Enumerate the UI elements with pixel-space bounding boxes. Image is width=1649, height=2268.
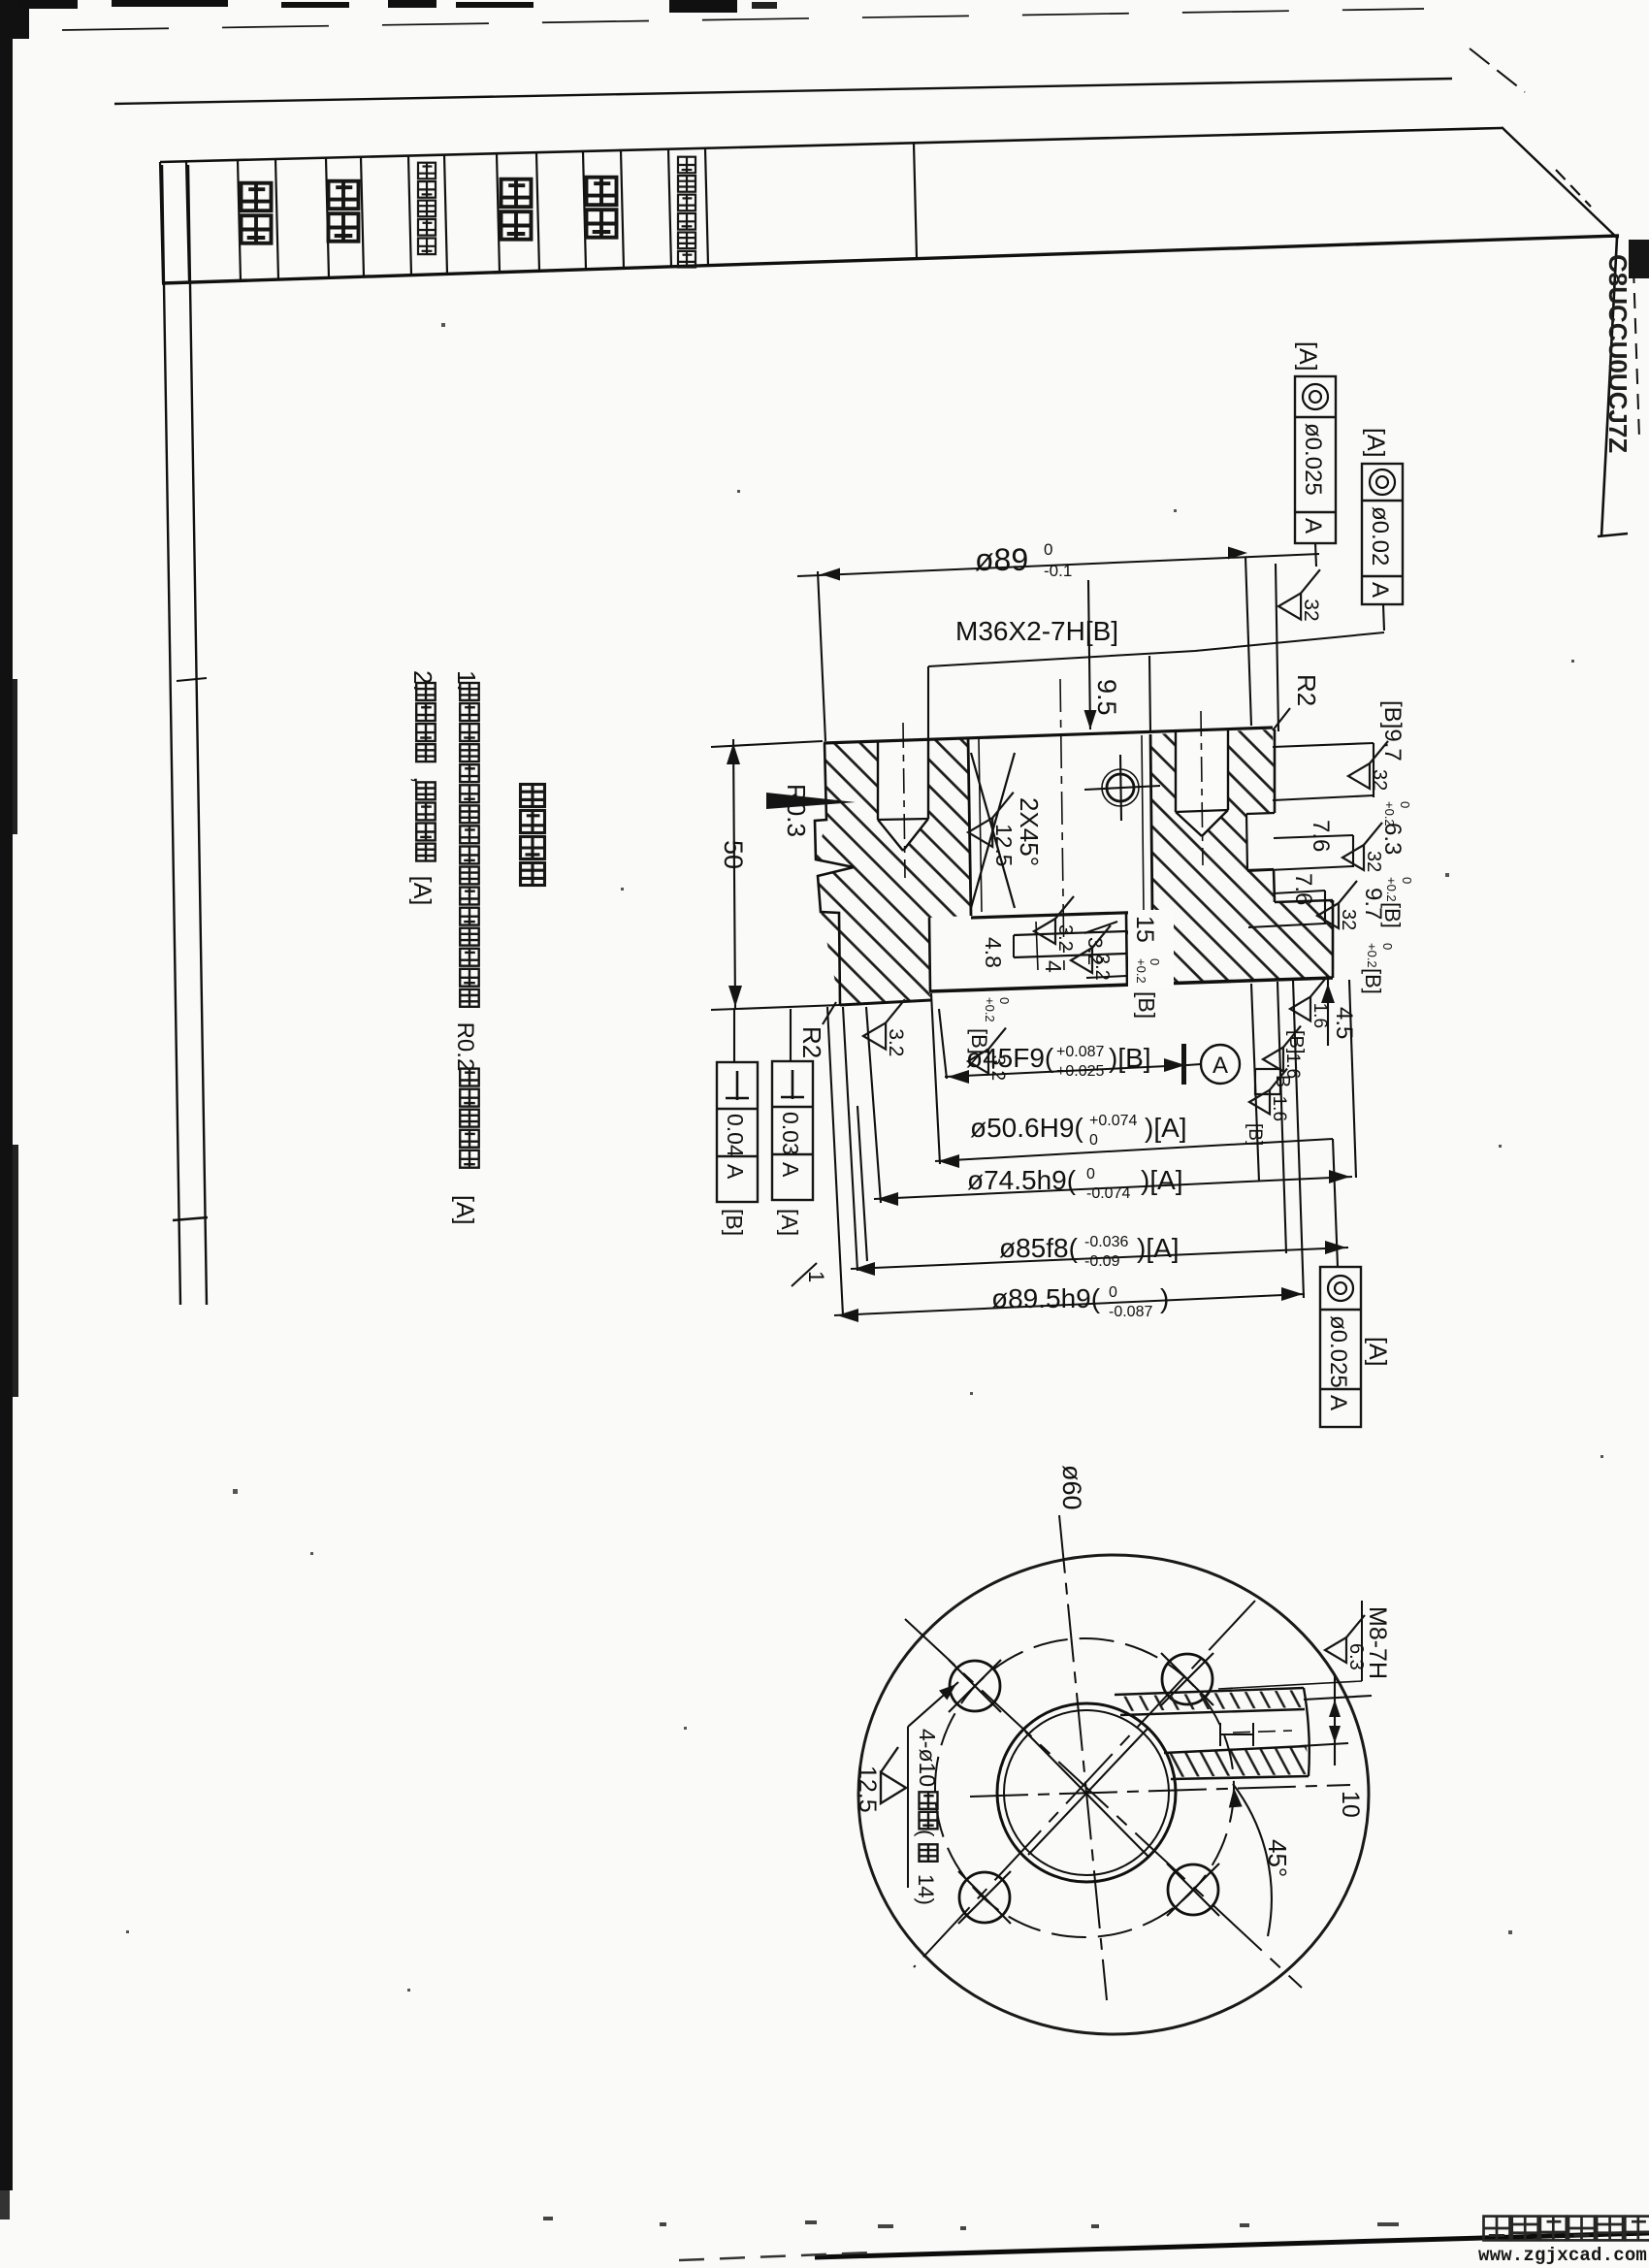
svg-text:0: 0 [1398, 801, 1412, 808]
svg-text:6.3: 6.3 [1345, 1643, 1367, 1670]
svg-text:0.04: 0.04 [723, 1114, 748, 1157]
svg-text:0: 0 [1148, 958, 1162, 965]
svg-text:32: 32 [1363, 851, 1384, 872]
svg-text:ø60: ø60 [1057, 1465, 1086, 1510]
svg-text:0: 0 [997, 997, 1012, 1004]
svg-text:A: A [1212, 1053, 1228, 1079]
svg-text:)[A]: )[A] [1145, 1113, 1187, 1143]
svg-text:[A]: [A] [451, 1195, 478, 1225]
svg-text:9.7: 9.7 [1360, 888, 1386, 920]
svg-text:1.6: 1.6 [1269, 1096, 1289, 1121]
svg-text:4: 4 [1041, 960, 1066, 973]
svg-text:0: 0 [1044, 540, 1052, 559]
svg-text:[B]: [B] [1361, 968, 1385, 994]
svg-text:12.5: 12.5 [991, 824, 1017, 866]
svg-text:A: A [778, 1162, 803, 1178]
svg-text:+0.2: +0.2 [983, 997, 997, 1022]
svg-text:0: 0 [1086, 1166, 1095, 1183]
svg-text:10: 10 [1337, 1791, 1364, 1818]
svg-text:[B]: [B] [1134, 991, 1159, 1019]
svg-text:[A]: [A] [1362, 428, 1389, 458]
svg-text:+0.2: +0.2 [1365, 943, 1379, 968]
svg-text:3.2: 3.2 [1054, 924, 1076, 952]
svg-text:14): 14) [914, 1874, 938, 1905]
svg-text:ø0.025: ø0.025 [1325, 1315, 1351, 1388]
svg-text:[A]: [A] [777, 1209, 802, 1236]
svg-text:1.6: 1.6 [1309, 1003, 1330, 1028]
svg-text:R0.2: R0.2 [452, 1022, 478, 1072]
svg-text:9.5: 9.5 [1092, 679, 1121, 716]
svg-text:-0.1: -0.1 [1044, 562, 1072, 580]
svg-text:0: 0 [1109, 1284, 1117, 1301]
svg-text:R0.3: R0.3 [782, 784, 811, 837]
svg-text:): ) [1160, 1283, 1169, 1313]
svg-text:ø85f8(: ø85f8( [999, 1233, 1079, 1263]
svg-text:M36X2-7H[B]: M36X2-7H[B] [955, 616, 1118, 646]
svg-text:ø45F9(: ø45F9( [966, 1043, 1054, 1073]
svg-text:ø89.5h9(: ø89.5h9( [991, 1283, 1101, 1313]
svg-text:R2: R2 [1292, 674, 1321, 706]
svg-text:4-ø10: 4-ø10 [915, 1729, 940, 1787]
svg-text:www.zgjxcad.com: www.zgjxcad.com [1478, 2245, 1647, 2266]
svg-text:12.5: 12.5 [854, 1766, 881, 1813]
svg-text:ø50.6H9(: ø50.6H9( [970, 1113, 1083, 1143]
svg-text:1: 1 [804, 1271, 828, 1282]
svg-text:0: 0 [1089, 1132, 1098, 1149]
svg-text:32: 32 [1338, 909, 1359, 930]
svg-text:[B]: [B] [722, 1209, 747, 1236]
svg-text:ø89: ø89 [975, 542, 1028, 577]
svg-text:15: 15 [1131, 916, 1158, 943]
svg-text:[A]: [A] [408, 876, 436, 906]
svg-text:0: 0 [1380, 943, 1395, 950]
svg-text:R2: R2 [797, 1026, 826, 1058]
svg-text:A: A [1367, 582, 1393, 598]
svg-text:32: 32 [1369, 769, 1390, 791]
svg-text:3.2: 3.2 [885, 1028, 907, 1056]
svg-text:0.03: 0.03 [778, 1112, 803, 1155]
svg-text:(: ( [914, 1830, 938, 1837]
svg-text:0: 0 [1400, 877, 1414, 884]
svg-text:7.6: 7.6 [1308, 820, 1334, 852]
svg-text:-0.036: -0.036 [1084, 1234, 1128, 1250]
svg-text:A: A [1325, 1395, 1351, 1410]
svg-text:ø0.025: ø0.025 [1300, 423, 1326, 496]
svg-text:[A]: [A] [1364, 1337, 1391, 1367]
svg-text:M8-7H: M8-7H [1364, 1606, 1391, 1679]
svg-text:2X45°: 2X45° [1015, 797, 1044, 866]
svg-text:+0.074: +0.074 [1089, 1113, 1137, 1129]
svg-text:4.5: 4.5 [1331, 1007, 1357, 1039]
svg-text:7.6: 7.6 [1290, 873, 1316, 905]
svg-text:-0.09: -0.09 [1084, 1253, 1120, 1270]
svg-text:A: A [723, 1164, 748, 1180]
svg-text:+0.087: +0.087 [1056, 1044, 1104, 1060]
svg-text:-0.087: -0.087 [1109, 1304, 1152, 1320]
svg-text:3.2: 3.2 [1083, 937, 1106, 965]
svg-text:[B]9.7: [B]9.7 [1379, 700, 1406, 761]
svg-text:A: A [1300, 518, 1326, 534]
svg-text:C8UCCU0UCJ7Z: C8UCCU0UCJ7Z [1603, 254, 1633, 453]
svg-text:50: 50 [719, 840, 748, 869]
svg-text:+0.2: +0.2 [1134, 958, 1148, 984]
svg-text:B: B [1272, 1075, 1293, 1087]
svg-text:)[A]: )[A] [1137, 1233, 1180, 1263]
svg-text:ø0.02: ø0.02 [1367, 506, 1393, 566]
svg-text:4.8: 4.8 [981, 937, 1006, 968]
svg-text:[A]: [A] [1294, 341, 1321, 372]
svg-text:32: 32 [1300, 599, 1322, 621]
svg-text:)[A]: )[A] [1141, 1165, 1183, 1195]
